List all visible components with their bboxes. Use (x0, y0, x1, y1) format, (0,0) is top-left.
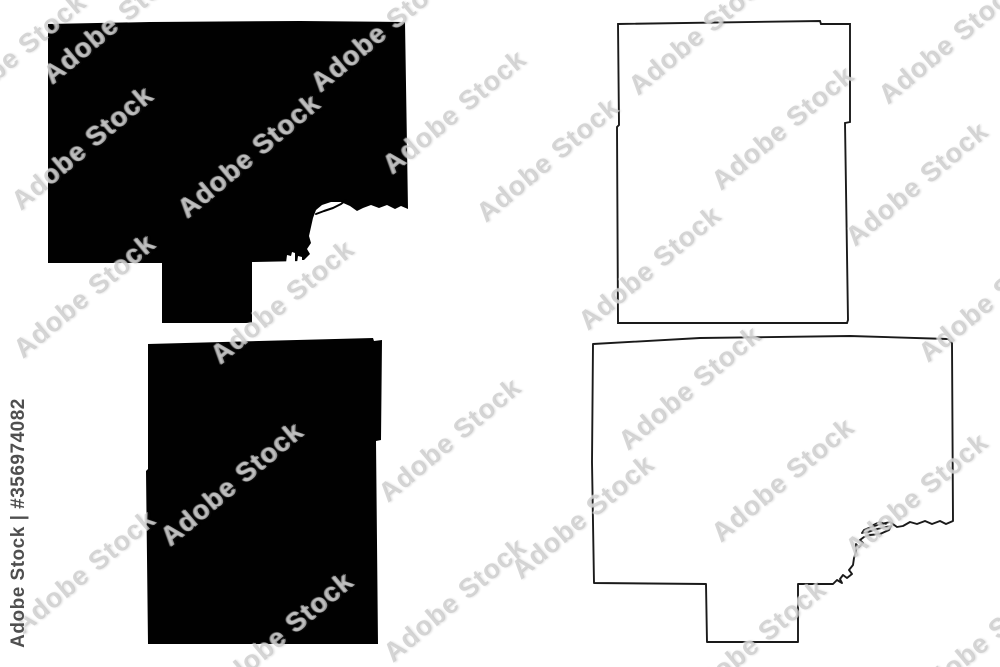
county-map-outline-top-right (617, 21, 850, 323)
stock-image-canvas: Adobe StockAdobe StockAdobe StockAdobe S… (0, 0, 1000, 667)
county-map-outline-bottom-right (592, 336, 953, 642)
county-maps-artwork (0, 0, 1000, 667)
county-map-silhouette-top-left (48, 21, 408, 323)
county-map-silhouette-bottom-left (146, 338, 382, 644)
watermark-credit-id: Adobe Stock | #356974082 (8, 398, 30, 648)
